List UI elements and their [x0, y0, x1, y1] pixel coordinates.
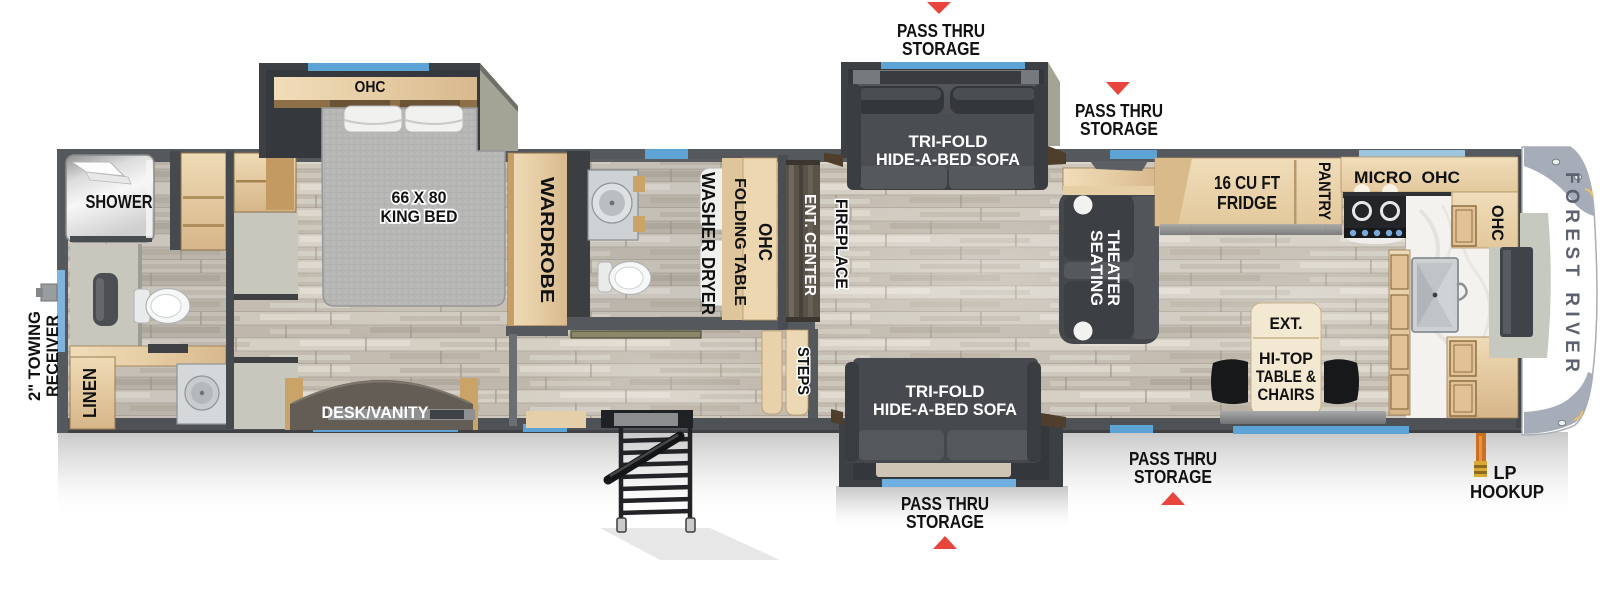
svg-text:FRIDGE: FRIDGE [1217, 193, 1277, 213]
svg-text:SHOWER: SHOWER [86, 192, 153, 212]
svg-text:OHC: OHC [355, 79, 386, 96]
svg-text:WASHER: WASHER [698, 172, 718, 252]
svg-text:RECEIVER: RECEIVER [43, 315, 62, 397]
svg-text:STORAGE: STORAGE [1080, 119, 1158, 139]
svg-text:THEATER: THEATER [1104, 230, 1122, 306]
svg-text:66 X 80: 66 X 80 [392, 188, 447, 207]
svg-text:LP: LP [1493, 463, 1516, 483]
svg-text:TRI-FOLD: TRI-FOLD [906, 383, 985, 401]
svg-text:TRI-FOLD: TRI-FOLD [909, 133, 988, 151]
svg-text:PASS THRU: PASS THRU [1129, 449, 1217, 469]
svg-text:PASS THRU: PASS THRU [1075, 101, 1163, 121]
svg-text:2" TOWING: 2" TOWING [25, 311, 44, 401]
svg-text:HIDE-A-BED SOFA: HIDE-A-BED SOFA [876, 151, 1020, 169]
svg-text:TABLE &: TABLE & [1256, 368, 1316, 386]
svg-text:FIREPLACE: FIREPLACE [832, 199, 850, 289]
svg-text:OHC: OHC [1488, 205, 1507, 241]
svg-text:FOLDING TABLE: FOLDING TABLE [731, 178, 748, 306]
svg-text:PASS THRU: PASS THRU [897, 21, 985, 41]
svg-text:HIDE-A-BED SOFA: HIDE-A-BED SOFA [873, 401, 1017, 419]
svg-text:OHC: OHC [755, 223, 775, 261]
svg-text:DRYER: DRYER [698, 257, 718, 315]
svg-text:FOREST RIVER: FOREST RIVER [1561, 172, 1582, 372]
svg-text:MICRO OHC: MICRO OHC [1354, 168, 1460, 187]
svg-text:STORAGE: STORAGE [1134, 467, 1212, 487]
svg-text:SEATING: SEATING [1087, 230, 1105, 306]
svg-text:STORAGE: STORAGE [902, 39, 980, 59]
svg-text:LINEN: LINEN [80, 368, 100, 418]
svg-text:16 CU FT: 16 CU FT [1214, 173, 1280, 193]
svg-text:WARDROBE: WARDROBE [537, 177, 557, 303]
svg-text:EXT.: EXT. [1270, 315, 1303, 333]
svg-text:CHAIRS: CHAIRS [1258, 386, 1315, 404]
svg-text:STORAGE: STORAGE [906, 512, 984, 532]
svg-text:HI-TOP: HI-TOP [1259, 350, 1313, 368]
svg-text:STEPS: STEPS [794, 347, 811, 395]
svg-text:DESK/VANITY: DESK/VANITY [322, 404, 429, 422]
svg-text:PASS THRU: PASS THRU [901, 494, 989, 514]
svg-text:ENT. CENTER: ENT. CENTER [801, 194, 818, 296]
svg-text:HOOKUP: HOOKUP [1470, 482, 1544, 502]
svg-text:PANTRY: PANTRY [1315, 162, 1334, 221]
svg-text:KING BED: KING BED [381, 207, 458, 226]
